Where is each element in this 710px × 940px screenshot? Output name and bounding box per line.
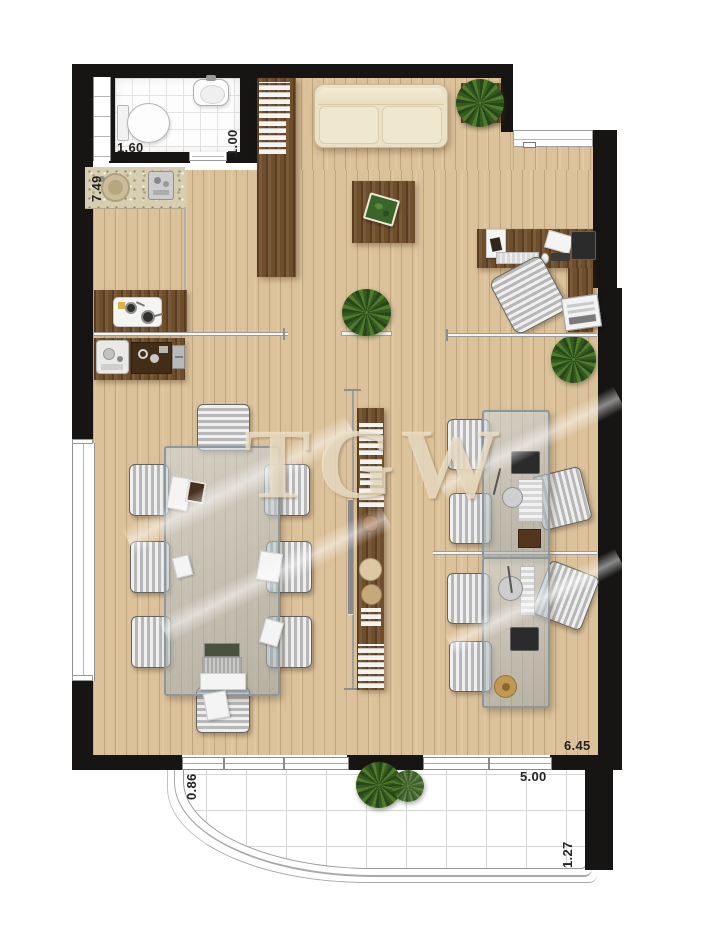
entry-door-handle bbox=[523, 142, 536, 148]
bathroom-door bbox=[189, 151, 227, 161]
pan-handle bbox=[154, 313, 163, 317]
window-mullion bbox=[183, 763, 348, 764]
sink-knob bbox=[150, 354, 159, 363]
wood-floor-entry bbox=[513, 147, 600, 170]
sofa-cushion bbox=[382, 106, 442, 144]
window-mullion bbox=[488, 758, 490, 769]
sofa bbox=[314, 84, 448, 148]
appliance-line bbox=[175, 356, 183, 358]
dim-floor-width: 6.45 bbox=[564, 738, 591, 753]
wash-basin bbox=[193, 79, 229, 106]
bathroom-door-leaf bbox=[192, 156, 224, 157]
counter-sink-unit bbox=[148, 171, 174, 200]
dim-bath-depth: 1.00 bbox=[225, 122, 240, 156]
laptop-keyboard bbox=[202, 657, 242, 674]
cooktop bbox=[113, 297, 162, 327]
burner bbox=[141, 310, 155, 324]
dim-balcony-width: 5.00 bbox=[520, 769, 547, 784]
table-pad bbox=[185, 480, 207, 505]
table-paper bbox=[256, 550, 283, 582]
left-window-cap-bottom bbox=[72, 675, 93, 681]
books bbox=[259, 82, 290, 118]
shelf-books bbox=[358, 644, 384, 688]
plant-office bbox=[551, 336, 596, 383]
tray-item bbox=[382, 210, 389, 217]
window-mullion bbox=[283, 758, 285, 769]
wall-top bbox=[72, 64, 513, 78]
round-basin-inner bbox=[108, 180, 123, 195]
coffee-machine bbox=[96, 340, 129, 374]
wall-left-upper bbox=[72, 64, 93, 443]
kitchen-sink bbox=[131, 342, 172, 374]
plant-balcony-small bbox=[392, 770, 424, 802]
window-mullion bbox=[223, 758, 225, 769]
dim-bath-width: 1.60 bbox=[117, 140, 144, 155]
partition-tick bbox=[283, 328, 285, 340]
sink-slot bbox=[153, 190, 169, 195]
laptop-papers bbox=[200, 673, 246, 690]
desk-box bbox=[518, 529, 541, 548]
plant-corner bbox=[456, 79, 504, 127]
entry-door-track bbox=[514, 139, 592, 140]
books bbox=[259, 121, 286, 154]
pen-tray bbox=[551, 253, 570, 261]
chair-paper bbox=[203, 690, 230, 721]
gold-plate bbox=[494, 675, 517, 698]
wall-bathroom-right bbox=[240, 64, 257, 162]
sofa-back bbox=[318, 88, 444, 105]
wall-stub bbox=[184, 207, 186, 290]
dim-left-length: 7.49 bbox=[89, 166, 104, 202]
coffee-knob bbox=[103, 348, 115, 360]
wall-bottom-right bbox=[550, 755, 622, 770]
wall-right-upper bbox=[593, 130, 617, 288]
monitor bbox=[511, 451, 540, 474]
dim-balcony-left-depth: 0.86 bbox=[184, 768, 199, 800]
basin-bowl bbox=[200, 85, 225, 104]
basin-faucet bbox=[206, 75, 216, 81]
round-basin bbox=[101, 173, 130, 202]
conference-chair bbox=[197, 404, 250, 451]
monitor bbox=[571, 231, 596, 260]
partition-tick bbox=[344, 389, 361, 391]
sofa-cushion bbox=[319, 106, 379, 144]
burner bbox=[125, 302, 137, 314]
shelf-plate bbox=[359, 558, 382, 581]
floor-plan: TGW 1.60 1.00 7.49 0.86 6.45 5.00 1.27 bbox=[0, 0, 710, 940]
sponge bbox=[159, 346, 168, 353]
bathroom-window bbox=[93, 77, 111, 161]
bottom-window-left bbox=[182, 757, 349, 770]
wall-left-bottom bbox=[72, 681, 93, 770]
wall-right-lower bbox=[598, 288, 622, 758]
sink-knob bbox=[163, 181, 169, 187]
watermark: TGW bbox=[244, 414, 506, 514]
glass-partition-right bbox=[447, 333, 597, 337]
coffee-dot bbox=[117, 356, 123, 362]
wall-bottom-left bbox=[85, 755, 182, 770]
partition-tick bbox=[446, 329, 448, 341]
shelf-books bbox=[361, 608, 381, 626]
cooktop-chip bbox=[118, 302, 125, 309]
printer bbox=[561, 294, 602, 332]
conference-chair bbox=[129, 464, 169, 516]
tray-item bbox=[374, 202, 383, 210]
left-window-glazing bbox=[83, 443, 84, 681]
left-window-cap-top bbox=[72, 439, 93, 444]
sink-knob bbox=[154, 177, 161, 184]
plant-middle bbox=[342, 289, 391, 336]
left-window bbox=[72, 443, 95, 681]
kitchen-appliance bbox=[172, 345, 185, 369]
paper-clip-item bbox=[490, 237, 502, 252]
entry-door bbox=[513, 130, 593, 147]
laptop-screen bbox=[204, 643, 240, 657]
shelf-bowl bbox=[361, 584, 382, 605]
plate-dot bbox=[502, 683, 510, 691]
glass-partition-kitchen bbox=[94, 332, 288, 336]
sink-faucet bbox=[138, 349, 148, 359]
monitor bbox=[510, 627, 539, 651]
toilet bbox=[127, 103, 170, 143]
printer-line bbox=[568, 307, 595, 314]
pan-handle bbox=[136, 301, 145, 307]
wall-balcony-right bbox=[585, 770, 613, 870]
printer-tray bbox=[569, 314, 597, 325]
coffee-base bbox=[101, 364, 123, 370]
dim-balcony-right-depth: 1.27 bbox=[560, 832, 575, 868]
